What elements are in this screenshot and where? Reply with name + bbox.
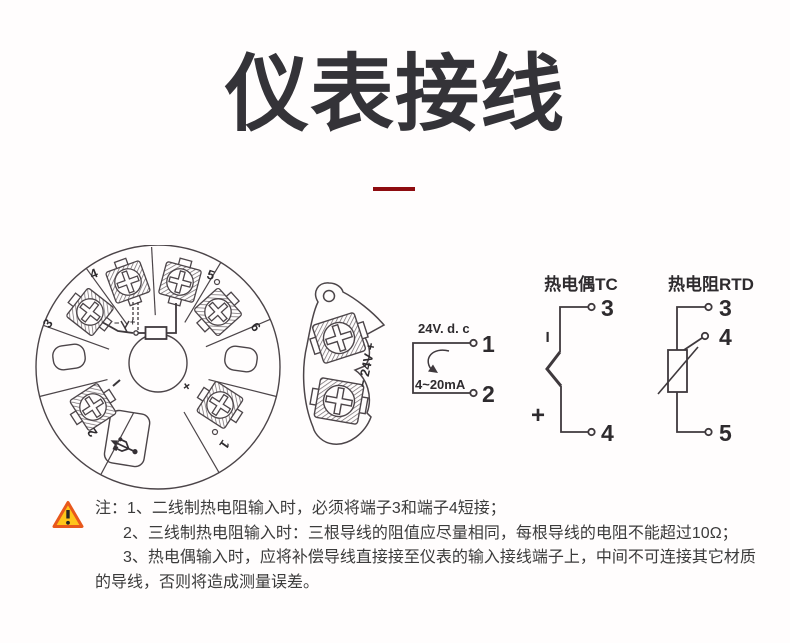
signal-range-label: 4~20mA [415,377,466,392]
rtd-wire-top [677,307,705,350]
current-loop-diagram: 24V. d. c 4~20mA 1 2 [405,310,510,415]
tc-plus-label: + [531,402,545,429]
usb-recess [103,409,151,468]
tc-terminal-4-dot [588,429,594,435]
marker-dot-5 [215,280,220,285]
right-cutout-slot [223,345,258,373]
rtd-terminal-3-label: 3 [719,295,732,321]
notes-block: 注：1、二线制热电阻输入时，必须将端子3和端子4短接； 2、三线制热电阻输入时：… [95,497,759,595]
tc-terminal-3-dot [588,304,594,310]
rtd-terminal-5-label: 5 [719,420,732,446]
wire-node [134,331,138,335]
tc-terminal-3-label: 3 [601,295,614,321]
rtd-terminal-5-dot [705,429,711,435]
terminal-screw-3 [61,284,119,341]
rtd-heading: 热电阻RTD [662,270,760,295]
supply-voltage-label: 24V. d. c [418,321,470,336]
rtd-terminal-4-dot [702,333,708,339]
terminal-label-4: 4 [88,265,101,282]
terminal-screw-5 [157,255,204,309]
meter-minus-label: − [114,318,119,328]
terminal-head-side-view-diagram: − 24V + [285,275,400,465]
terminal-head-top-view-diagram: 3 4 5 6 2 1 + − + [28,245,294,500]
polarity-minus-mark [113,380,120,386]
tc-heading: 热电偶TC [535,270,627,295]
head-outer-ring [36,245,280,489]
thermocouple-tc-diagram: 3 4 − + [525,295,635,450]
head-center-hub [129,334,187,392]
note-item-2: 2、三线制热电阻输入时：三根导线的阻值应尽量相同，每根导线的电阻不能超过10Ω； [95,522,759,547]
loop-terminal-2-label: 2 [482,381,495,407]
terminal-screw-6 [189,283,247,341]
terminal-label-6: 6 [248,319,264,334]
page-title: 仪表接线 [0,44,790,144]
tc-terminal-4-label: 4 [601,420,614,446]
title-underline-accent [373,187,415,191]
loop-terminal-1-label: 1 [482,331,495,357]
tc-wire-bottom [561,386,588,432]
warning-icon [51,499,85,531]
marker-dot-1 [213,430,218,435]
tc-junction [547,352,561,386]
current-direction-arrow [428,350,449,369]
tc-minus-label: − [536,331,558,343]
page: 仪表接线 [0,0,790,643]
loop-terminal-2-dot [470,390,476,396]
component-box [146,327,167,339]
terminal-screw-1 [191,377,249,432]
rtd-wire-bottom [677,392,705,432]
sector-divider-lines [40,247,277,475]
note-prefix: 注： [95,500,127,517]
meter-plus-label: + [130,317,135,327]
rtd-diagram: 3 4 5 [645,295,760,450]
note-item-1: 注：1、二线制热电阻输入时，必须将端子3和端子4短接； [95,497,759,522]
tc-wire-top [560,307,588,352]
usb-icon [107,434,140,459]
left-cutout-slot [51,343,86,371]
mount-hole [324,291,335,302]
rtd-terminal-3-dot [705,304,711,310]
terminal-label-1: 1 [216,437,232,452]
loop-terminal-1-dot [470,340,476,346]
polarity-plus-mark: + [179,378,194,395]
note-item-3: 3、热电偶输入时，应将补偿导线直接接至仪表的输入接线端子上，中间不可连接其它材质… [95,546,759,595]
rtd-terminal-4-label: 4 [719,324,732,350]
